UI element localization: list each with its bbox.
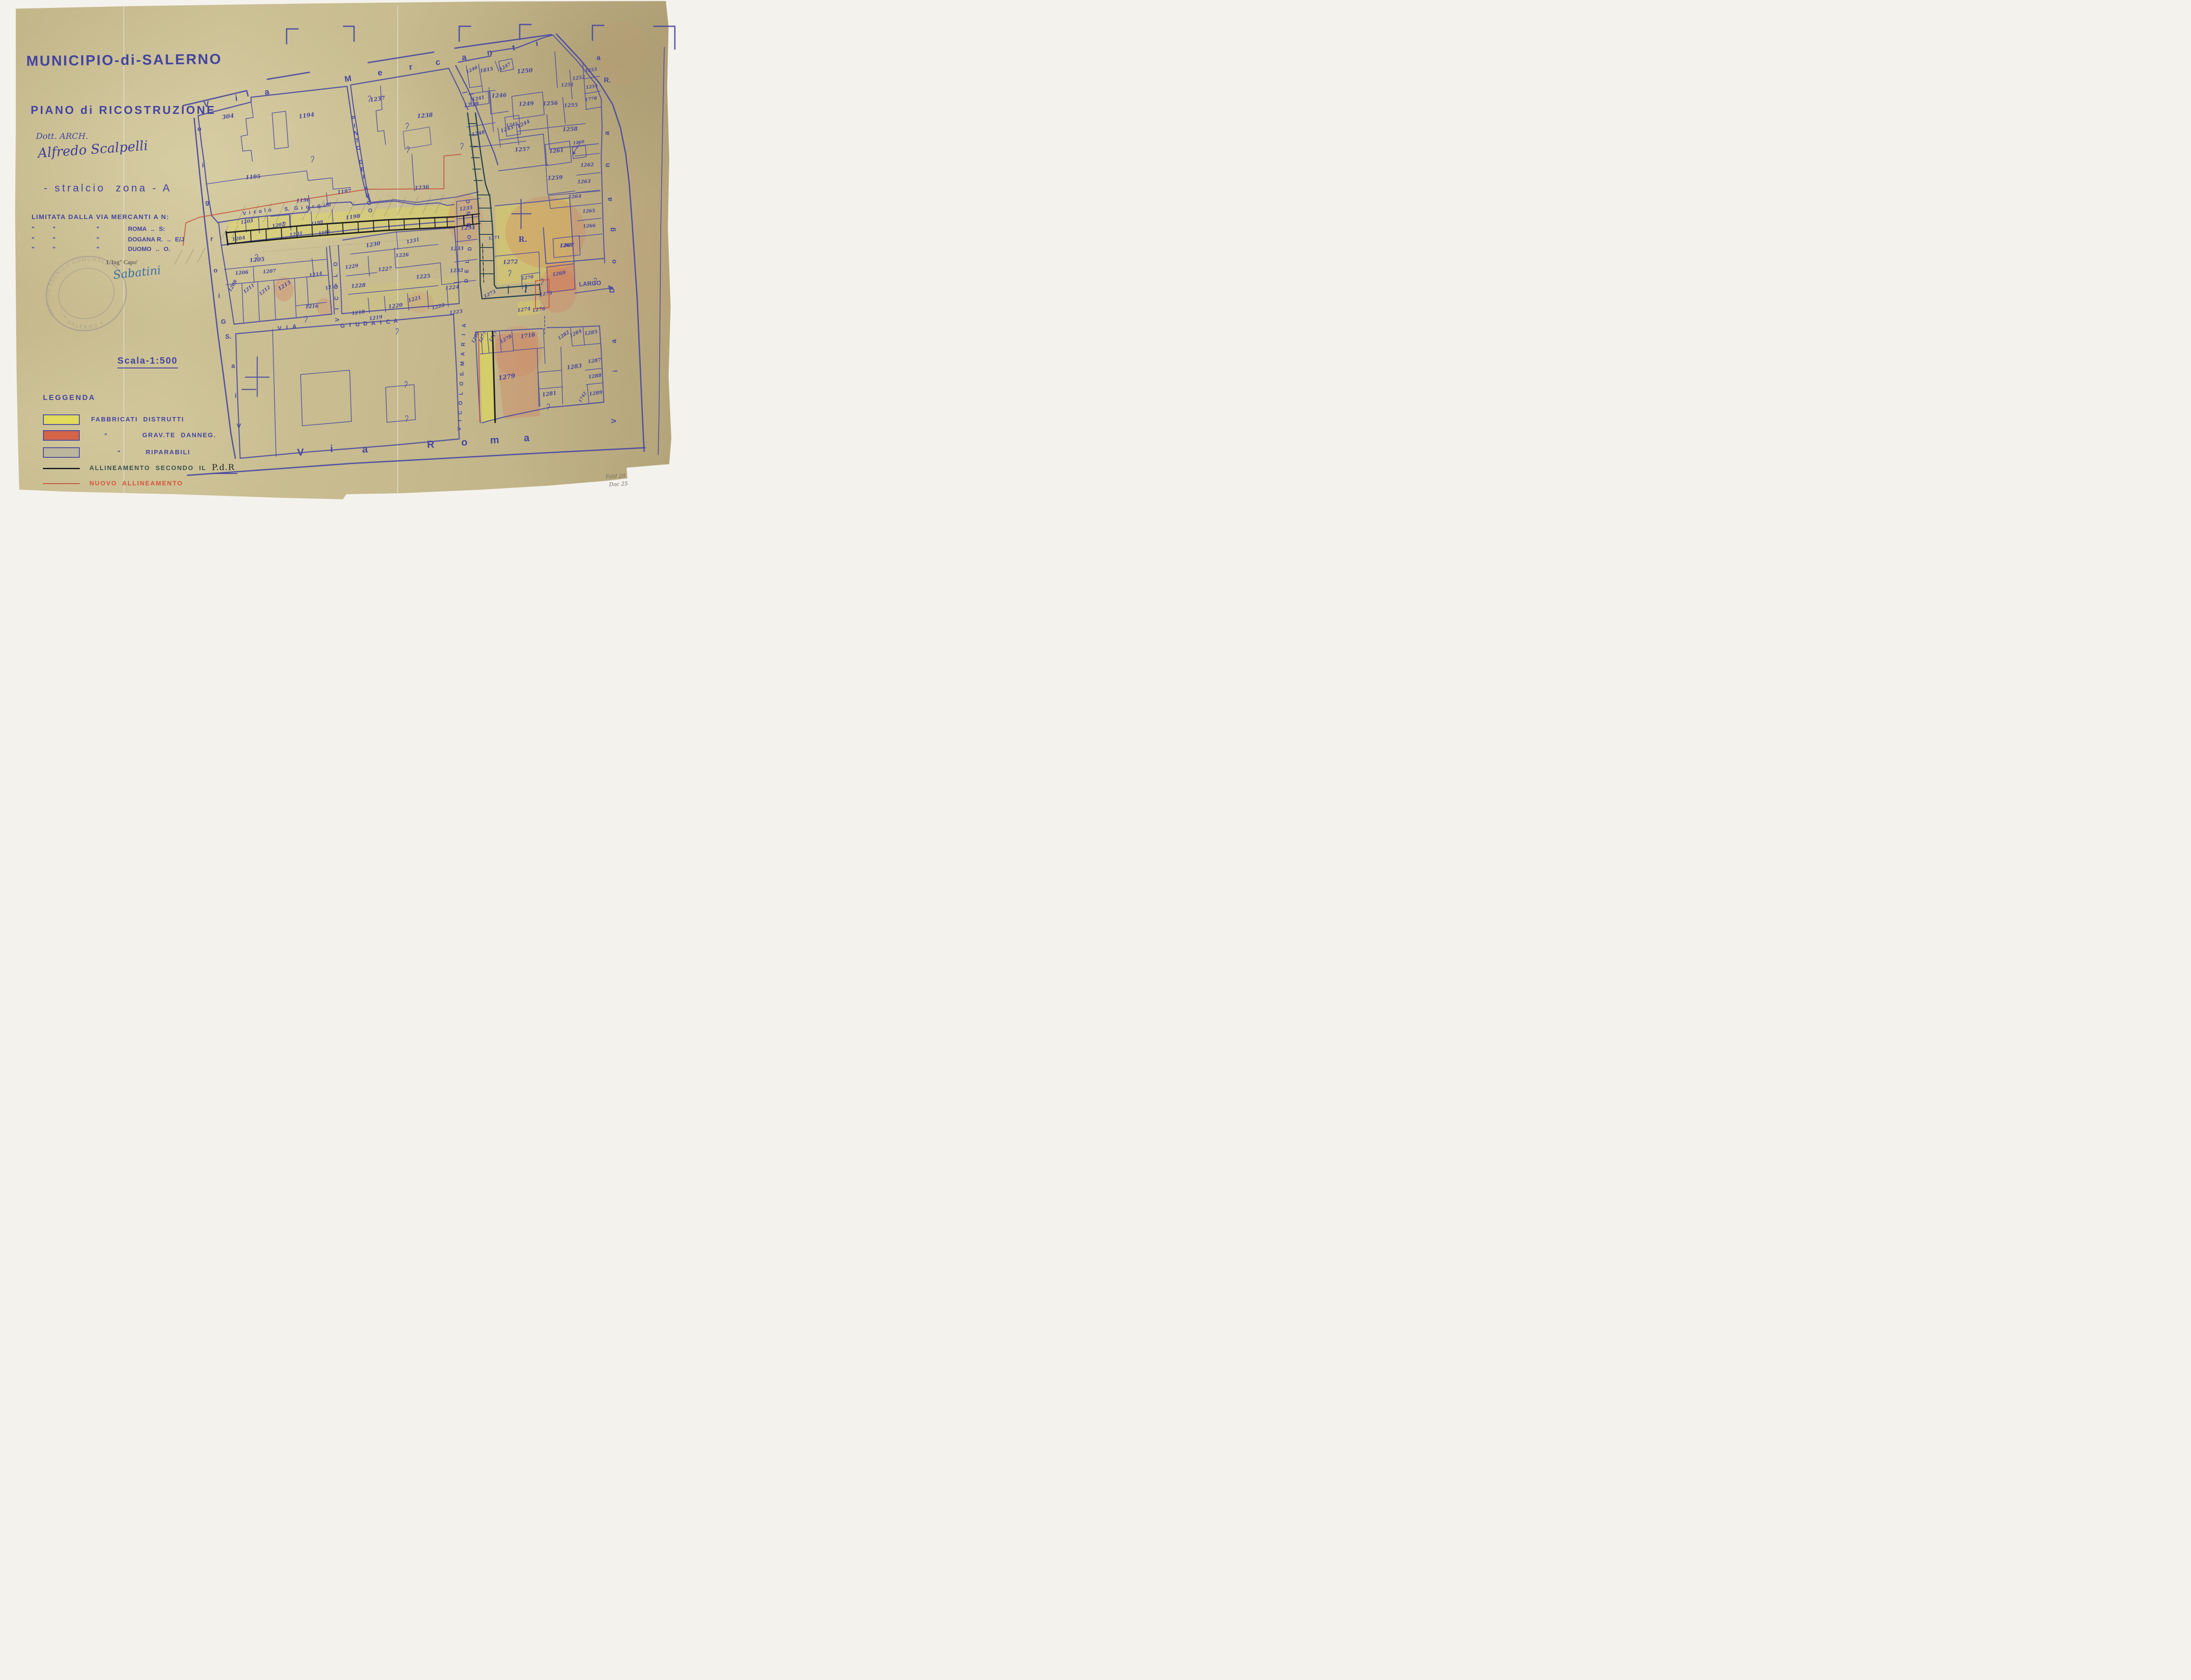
street-letter-vicolo-s-giorgio: V <box>242 210 246 217</box>
street-letter-vicolo-s-giorgio: i <box>323 202 325 208</box>
street-letter-via-giudaica: G <box>340 322 345 329</box>
legend-pdr-suffix: P.d.R <box>211 463 237 474</box>
plan-title: PIANO di RICOSTRUZIONE <box>31 103 216 117</box>
parcel-label-1226: 1226 <box>395 252 409 259</box>
parcel-label-1258: 1258 <box>562 125 578 133</box>
legend-heading: LEGGENDA <box>43 393 96 402</box>
street-letter-vicolo-s-giorgio: o <box>268 207 272 213</box>
street-letter-vicolo-arco-dei-pinto: P <box>351 115 355 121</box>
street-letter-via-dogana-r-vertical: V <box>610 418 618 423</box>
street-letter-vicolo-s-maria-del-domno: V <box>456 427 462 431</box>
parcel-label-1272: 1272 <box>503 258 518 265</box>
street-letter-via-dogana-r-vertical: a <box>610 339 618 343</box>
limit-direction: S: <box>159 225 165 232</box>
street-letter-via-roma: m <box>490 434 499 446</box>
legend-swatch-yellow <box>43 414 80 425</box>
parcel-label-1206: 1206 <box>235 269 249 276</box>
street-letter-vicolo-arco-dei-pinto: R <box>365 193 369 199</box>
archive-note-line1: Fald 20 <box>606 473 626 480</box>
street-letter-vicolo-s-maria-del-domno: A <box>461 323 467 327</box>
engineer-title: L'Ing" Capo' <box>106 259 138 266</box>
street-letter-via-mercanti: a <box>264 87 270 97</box>
street-letter-via-dogana-r-vertical: g <box>609 227 616 232</box>
street-letter-via-mercanti: a <box>461 53 468 62</box>
parcel-label-1287: 1287 <box>587 357 601 364</box>
street-letter-via-s-giorgio-edge: S. <box>225 333 231 340</box>
street-letter-vicolo-center: C <box>333 296 340 300</box>
annotation-largo: LARGO <box>579 279 602 287</box>
street-letter-vicolo-s-maria-del-domno: M <box>459 361 465 366</box>
street-letter-vicolo-s-giorgio: G <box>294 205 298 212</box>
street-letter-vicolo-arco-dei-pinto: O <box>368 208 372 214</box>
street-letter-via-giudaica: D <box>363 320 368 327</box>
ditto-mark: " <box>96 236 128 243</box>
limit-direction: O. <box>163 245 170 252</box>
street-letter-vicolo-s-giorgio: g <box>317 202 321 209</box>
street-letter-vicolo-s-maria-del-domno: D <box>467 247 473 251</box>
street-letter-via-mercanti: i <box>535 39 539 49</box>
legend-black-line <box>43 468 80 469</box>
street-letter-vicolo-s-giorgio: c <box>253 209 257 215</box>
archive-note-line2: Doc 25 <box>609 481 628 488</box>
street-letter-via-dogana-r-vertical: a <box>606 197 613 201</box>
parcel-label-1264: 1264 <box>568 193 581 200</box>
street-letter-via-giudaica: A <box>292 323 297 330</box>
street-letter-via-mercanti: r <box>408 63 413 72</box>
legend-label: RIPARABILI <box>146 449 191 456</box>
street-letter-via-s-giorgio-edge: G <box>221 318 226 325</box>
legend-red-line <box>43 483 80 484</box>
limit-direction: E/J <box>175 236 184 243</box>
ditto-mark: " <box>96 245 128 252</box>
parcel-label-1237: 1237 <box>369 95 386 103</box>
parcel-label-1250: 1250 <box>517 67 533 75</box>
ditto-mark: " <box>32 225 53 232</box>
legend-swatch-red <box>43 430 80 441</box>
parcel-label-1255: 1255 <box>564 102 578 109</box>
street-letter-via-roma: a <box>524 432 530 443</box>
parcel-label-1249: 1249 <box>518 100 534 107</box>
ditto-mark: " <box>53 245 96 252</box>
street-letter-via-giudaica: V <box>277 325 282 332</box>
parcel-label-1225: 1225 <box>415 273 430 280</box>
street-letter-vicolo-arco-dei-pinto: C <box>367 200 371 206</box>
street-letter-vicolo-s-maria-del-domno: O <box>457 401 464 405</box>
parcel-label-1232: 1232 <box>450 267 464 274</box>
street-letter-via-giudaica: I <box>380 319 382 325</box>
limit-row-dogana: " " " DOGANA R. .. E/J <box>32 236 185 243</box>
parcel-label-1288: 1288 <box>588 372 602 380</box>
parcel-label-1243: 1243 <box>500 124 514 134</box>
parcel-label-1216: 1216 <box>305 303 319 310</box>
parcel-label-1254: 1254 <box>585 84 598 90</box>
parcel-label-1265: 1265 <box>582 208 596 214</box>
parcel-label-1233: 1233 <box>450 245 464 252</box>
limit-dots: .. <box>151 225 155 232</box>
street-letter-vicolo-center: L <box>333 274 339 277</box>
parcel-label-1263: 1263 <box>577 178 591 185</box>
street-letter-vicolo-arco-dei-pinto: A <box>364 185 368 191</box>
street-letter-via-roma: o <box>461 436 468 448</box>
street-letter-vicolo-s-maria-del-domno: D <box>463 279 469 283</box>
street-letter-vicolo-s-giorgio: o <box>306 204 309 210</box>
street-letter-via-roma: V <box>297 446 305 458</box>
street-letter-vicolo-s-giorgio: i <box>249 209 251 216</box>
street-letter-vicolo-arco-dei-pinto: I <box>354 123 355 129</box>
parcel-label-1244: 1244 <box>516 118 531 129</box>
street-letter-vicolo-arco-dei-pinto: I <box>363 174 364 180</box>
parcel-label-1229: 1229 <box>344 263 358 270</box>
street-letter-via-mercanti: M <box>344 74 352 84</box>
parcel-label-1266: 1266 <box>583 223 596 229</box>
limit-row-roma: " " " ROMA .. S: <box>32 225 185 232</box>
parcel-label-1195: 1195 <box>245 173 261 181</box>
ditto-mark: " <box>117 449 121 456</box>
street-letter-vicolo-s-giorgio: o <box>259 208 262 214</box>
page-title: MUNICIPIO-di-SALERNO <box>26 51 222 70</box>
legend-item-new-alignment: NUOVO ALLINEAMENTO <box>43 480 183 487</box>
street-letter-via-giudaica: I <box>286 324 288 331</box>
parcel-label-1259: 1259 <box>547 174 563 181</box>
parcel-label-1289: 1289 <box>589 389 603 397</box>
ditto-mark: " <box>32 245 53 252</box>
street-letter-via-dogana-r-vertical: i <box>612 370 619 372</box>
street-letter-vicolo-s-maria-del-domno: L <box>464 260 470 263</box>
parcel-label-1231: 1231 <box>406 237 420 245</box>
parcel-label-1257: 1257 <box>514 145 530 153</box>
parcel-label-1207: 1207 <box>262 268 277 275</box>
street-letter-via-dogana-r-vertical: a <box>603 131 611 135</box>
street-letter-via-mercanti: e <box>377 68 383 78</box>
street-letter-via-roma: R <box>427 439 435 450</box>
street-letter-vicolo-center: O <box>333 262 339 266</box>
street-letter-via-dogana-r: a <box>597 54 601 62</box>
street-letter-via-dogana-r: R. <box>604 77 611 84</box>
legend-item-pdr-alignment: ALLINEAMENTO SECONDO IL P.d.R <box>43 463 238 474</box>
limit-dots: .. <box>156 245 160 252</box>
street-letter-vicolo-center: I <box>334 308 340 309</box>
street-letter-vicolo-s-maria-del-domno: O <box>458 382 464 386</box>
ditto-mark: " <box>96 225 128 232</box>
parcel-label-1281: 1281 <box>542 390 557 398</box>
street-letter-vicolo-s-maria-del-domno: S. <box>459 371 465 376</box>
parcel-label-1256: 1256 <box>542 99 558 107</box>
parcel-label-1214: 1214 <box>308 270 323 278</box>
parcel-label-1283: 1283 <box>566 362 582 371</box>
street-letter-vicolo-s-maria-del-domno: M <box>466 223 472 227</box>
street-letter-vicolo-s-maria-del-domno: E <box>464 269 470 273</box>
parcel-label-1238: 1238 <box>417 112 433 120</box>
street-letter-vicolo-arco-dei-pinto: T <box>355 138 359 144</box>
street-letter-vicolo-s-maria-del-domno: I <box>457 420 463 421</box>
street-letter-via-giudaica: I <box>349 322 351 328</box>
street-letter-vicolo-s-giorgio: i <box>301 205 303 211</box>
parcel-label-1212: 1212 <box>258 285 271 297</box>
street-letter-via-giudaica: A <box>371 320 376 326</box>
legend-label: FABBRICATI DISTRUTTI <box>91 416 184 423</box>
street-letter-via-s-giorgio-edge: i <box>218 292 220 300</box>
street-letter-vicolo-s-maria-del-domno: O <box>465 199 471 203</box>
legend-label: NUOVO ALLINEAMENTO <box>89 480 183 487</box>
parcel-label-1778: 1778 <box>585 96 597 103</box>
street-letter-vicolo-s-maria-del-domno: R <box>460 342 466 346</box>
limit-street-name: DOGANA R. <box>128 236 163 243</box>
parcel-label-1246: 1246 <box>491 92 507 99</box>
svg-text:* SALERNO *: * SALERNO * <box>61 304 106 338</box>
street-letter-via-dogana-r-vertical: n <box>604 163 611 167</box>
legend-swatch-gray <box>43 447 80 458</box>
street-letter-vicolo-s-maria-del-domno: A <box>460 352 466 356</box>
parcel-label-1261: 1261 <box>549 147 564 155</box>
parcel-label-1251: 1251 <box>561 82 574 88</box>
street-letter-vicolo-s-giorgio: r <box>312 203 315 209</box>
parcel-label-1742: 1742 <box>578 391 588 403</box>
parcel-label-1197: 1197 <box>337 187 351 195</box>
scale-label: Scala-1:500 <box>117 356 178 368</box>
parcel-label-1230: 1230 <box>365 240 381 249</box>
street-letter-vicolo-s-giorgio: l <box>264 207 266 213</box>
legend-item-damaged: " GRAV.TE DANNEG. <box>43 430 216 441</box>
street-letter-via-dogana-r-vertical: o <box>610 259 618 264</box>
street-letter-via-s-giorgio-edge: o <box>213 267 217 274</box>
limits-heading: LIMITATA DALLA VIA MERCANTI A N: <box>32 213 169 221</box>
street-letter-via-s-giorgio-edge: i <box>202 162 204 169</box>
parcel-label-1260: 1260 <box>573 139 585 146</box>
parcel-label-1815: 1815 <box>479 66 493 74</box>
street-letter-via-mercanti: n <box>486 48 493 57</box>
street-letter-via-mercanti: c <box>435 57 441 67</box>
street-letter-vicolo-arco-dei-pinto: D <box>359 159 363 165</box>
parcel-label-304: 304 <box>222 113 234 121</box>
parcel-label-1208: 1208 <box>227 279 238 293</box>
parcel-label-1223: 1223 <box>449 308 463 316</box>
street-letter-vicolo-s-giorgio: S. <box>284 206 290 212</box>
scanned-map-page: UFFICIO TECNICO COMUNALE * SALERNO * 304… <box>0 0 687 509</box>
limit-dots: .. <box>167 236 171 243</box>
ditto-mark: " <box>104 432 107 439</box>
parcel-label-1262: 1262 <box>580 162 594 168</box>
architect-prefix: Dott. ARCH. <box>36 131 88 141</box>
street-letter-vicolo-s-maria-del-domno: L <box>458 392 464 395</box>
parcel-label-1252: 1252 <box>572 74 585 81</box>
parcel-label-1240: 1240 <box>465 65 479 75</box>
street-letter-via-giudaica: U <box>355 321 360 328</box>
pdr-alignment-black <box>226 214 495 422</box>
ditto-mark: " <box>53 225 96 232</box>
limit-street-name: ROMA <box>128 225 147 232</box>
street-letter-via-s-giorgio-edge: i <box>235 392 237 400</box>
street-letter-vicolo-arco-dei-pinto: E <box>361 166 364 173</box>
parcel-label-1282: 1282 <box>557 329 571 341</box>
street-letter-via-roma: a <box>362 443 368 455</box>
street-letter-via-mercanti: i <box>234 94 238 103</box>
limit-street-name: DUOMO <box>128 245 152 252</box>
parcel-label-1224: 1224 <box>445 284 459 291</box>
street-letter-via-s-giorgio-edge: V <box>237 422 241 430</box>
legend-label: GRAV.TE DANNEG. <box>142 432 216 439</box>
street-letter-vicolo-s-maria-del-domno: C <box>457 410 463 414</box>
ditto-mark: " <box>32 236 53 243</box>
street-letter-vicolo-center: O <box>333 285 339 289</box>
parcel-label-1236: 1236 <box>414 184 429 191</box>
parcel-label-1196: 1196 <box>296 197 310 204</box>
street-letter-via-s-giorgio-edge: o <box>197 125 201 133</box>
legend-label: ALLINEAMENTO SECONDO IL <box>89 465 206 472</box>
street-letter-via-roma: i <box>330 443 333 454</box>
stamp-text-bottom: * SALERNO * <box>61 304 106 338</box>
street-letter-via-giudaica: C <box>386 318 391 325</box>
street-letter-vicolo-arco-dei-pinto: O <box>356 145 361 151</box>
parcel-label-1239: 1239 <box>463 100 479 109</box>
street-letter-vicolo-s-maria-del-domno: O <box>466 235 472 239</box>
parcel-label-1194: 1194 <box>298 112 315 120</box>
street-letter-via-giudaica: A <box>394 318 398 324</box>
plan-subtitle: - stralcio zona - A <box>44 182 172 195</box>
legend-item-repairable: " RIPARABILI <box>43 447 191 458</box>
legend-item-destroyed: FABBRICATI DISTRUTTI <box>43 414 184 425</box>
parcel-label-1211: 1211 <box>242 283 255 294</box>
parcel-label-1285: 1285 <box>584 329 598 336</box>
limit-row-duomo: " " " DUOMO .. O. <box>32 245 185 252</box>
street-letter-via-dogana-r-vertical: D <box>609 288 616 293</box>
street-network <box>183 25 675 475</box>
street-letter-vicolo-s-giorgio: o <box>328 202 331 208</box>
parcel-label-1227: 1227 <box>378 265 392 273</box>
street-letter-vicolo-center: V <box>334 318 340 322</box>
parcel-label-1205: 1205 <box>249 256 265 264</box>
street-letter-via-s-giorgio-edge: g <box>205 199 209 206</box>
street-letter-vicolo-s-maria-del-domno: N <box>465 212 472 216</box>
parcel-label-1268: 1268 <box>560 242 573 248</box>
ditto-mark: " <box>53 236 96 243</box>
annotation-r: R. <box>518 235 527 244</box>
parcel-label-1228: 1228 <box>351 282 366 290</box>
street-letter-via-s-giorgio-edge: r <box>210 235 213 243</box>
street-letter-via-s-giorgio-edge: a <box>231 362 235 370</box>
street-letter-vicolo-arco-dei-pinto: N <box>354 130 358 136</box>
street-letter-vicolo-s-maria-del-domno: I <box>461 334 467 335</box>
